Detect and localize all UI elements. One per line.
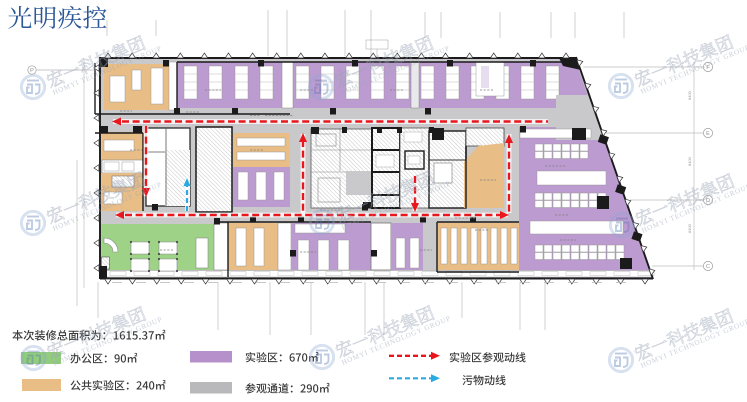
svg-text:E: E — [706, 131, 710, 137]
svg-text:8400: 8400 — [687, 90, 692, 100]
svg-text:8400: 8400 — [687, 156, 692, 166]
svg-text:C: C — [706, 264, 710, 270]
svg-text:P: P — [30, 68, 34, 74]
svg-text:8400: 8400 — [687, 223, 692, 233]
